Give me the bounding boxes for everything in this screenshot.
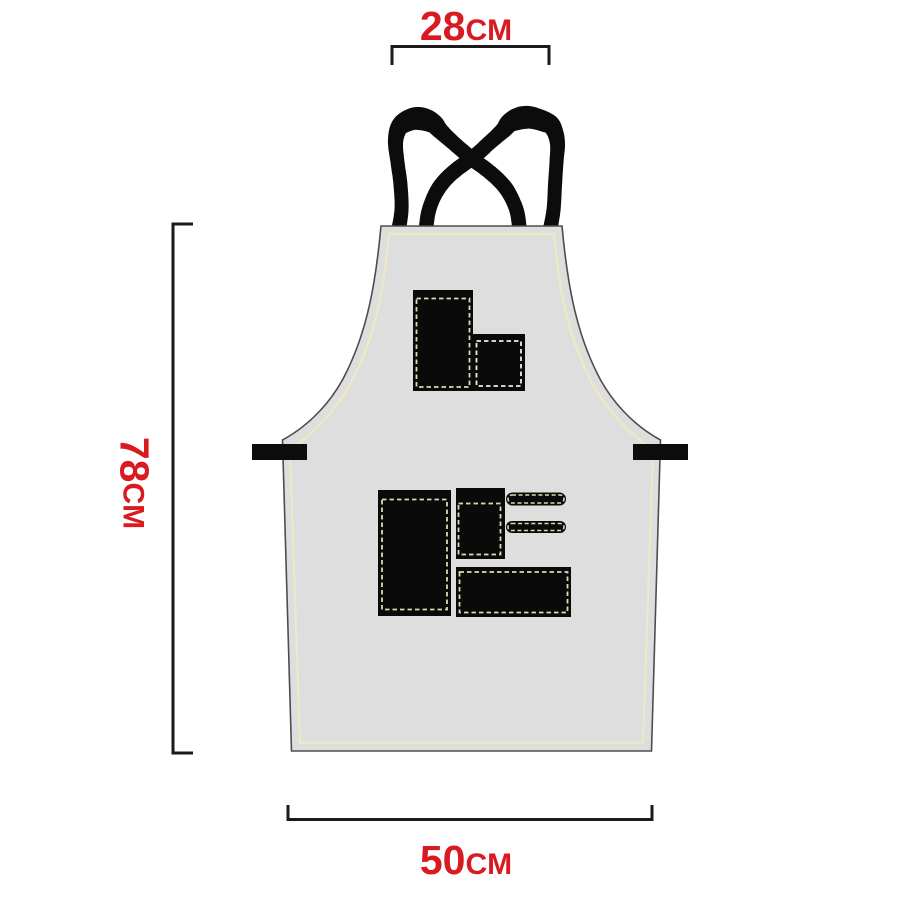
svg-text:78CM: 78CM [112,437,158,529]
svg-text:50CM: 50CM [420,837,512,883]
svg-text:28CM: 28CM [420,3,512,49]
